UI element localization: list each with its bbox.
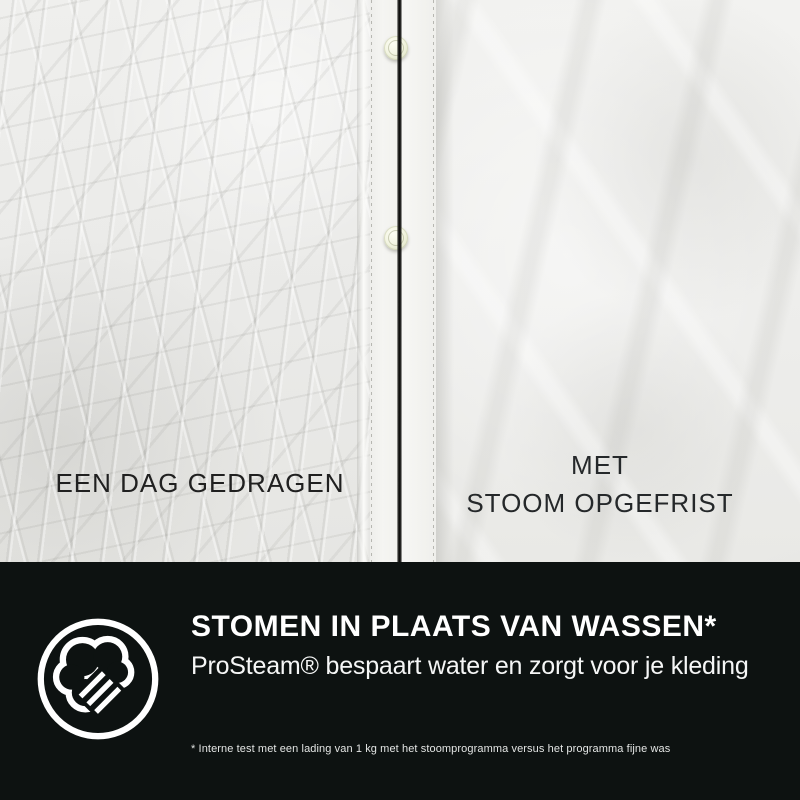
caption-steam-line2: STOOM OPGEFRIST — [430, 484, 770, 522]
caption-steam-line1: MET — [430, 446, 770, 484]
banner-headline: STOMEN IN PLAATS VAN WASSEN* — [191, 610, 791, 644]
shirt-photo: EEN DAG GEDRAGEN MET STOOM OPGEFRIST — [0, 0, 800, 562]
split-divider-line — [397, 0, 402, 562]
shirt-button-top — [384, 36, 408, 60]
caption-steam-refreshed: MET STOOM OPGEFRIST — [430, 446, 770, 522]
banner-footnote: * Interne test met een lading van 1 kg m… — [191, 743, 791, 755]
shirt-button-bottom — [384, 226, 408, 250]
banner: STOMEN IN PLAATS VAN WASSEN* ProSteam® b… — [0, 562, 800, 800]
promo-image: EEN DAG GEDRAGEN MET STOOM OPGEFRIST — [0, 0, 800, 800]
caption-worn: EEN DAG GEDRAGEN — [10, 468, 390, 499]
steam-cloud-icon — [34, 615, 162, 743]
banner-subheadline: ProSteam® bespaart water en zorgt voor j… — [191, 650, 791, 682]
